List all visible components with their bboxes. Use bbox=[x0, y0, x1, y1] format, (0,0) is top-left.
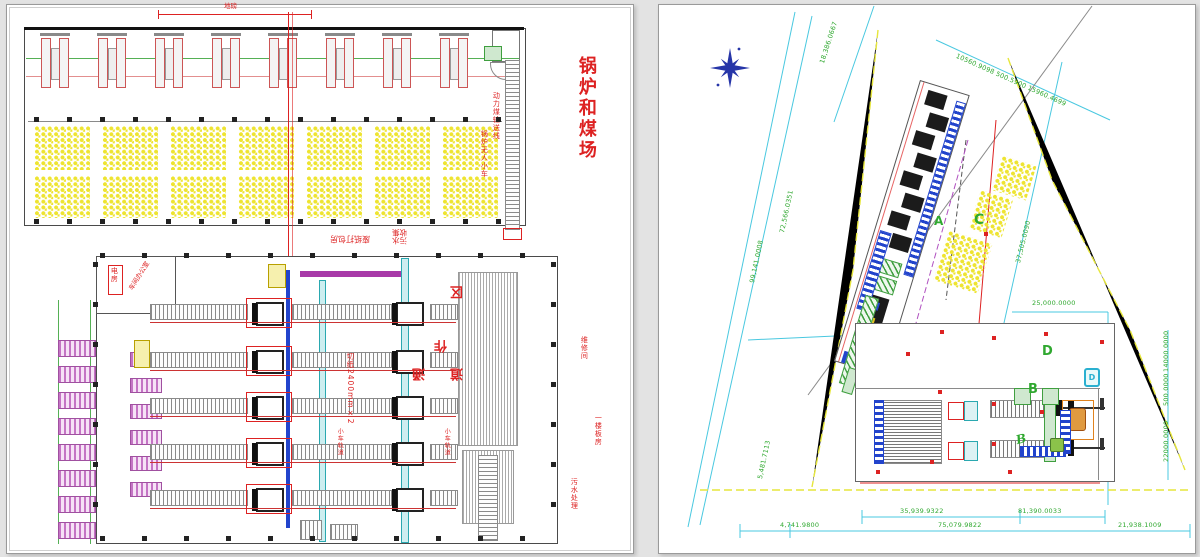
coal-pile-block bbox=[102, 126, 158, 170]
wall-column bbox=[520, 253, 525, 258]
weighbridge-label: 地磅 bbox=[224, 3, 237, 10]
machine-line bbox=[150, 438, 456, 468]
wall-column bbox=[166, 117, 171, 122]
machine-red-line bbox=[150, 416, 456, 417]
conveyor-strip bbox=[430, 398, 458, 414]
dim-right-1: 14000.0000 bbox=[1162, 331, 1170, 372]
coal-conveyor bbox=[505, 60, 520, 230]
wall-column bbox=[268, 536, 273, 541]
boiler-block bbox=[889, 233, 913, 253]
machine-unit bbox=[382, 33, 412, 92]
wall-column bbox=[93, 502, 98, 507]
wall-column bbox=[226, 253, 231, 258]
coal-pile-block bbox=[306, 126, 362, 170]
dim-bottom-upper-2: 81,390.0033 bbox=[1018, 507, 1062, 515]
track-label-right: 小车轨道 bbox=[443, 428, 449, 456]
wall-column bbox=[67, 219, 72, 224]
cad-drawings-stage: 动力煤输送线 锅炉无人小车 地磅 锅炉和煤场 电房 车间办公室 废纸打包房 污水… bbox=[0, 0, 1200, 557]
conveyor-strip bbox=[150, 304, 248, 320]
machine-red-line bbox=[150, 462, 456, 463]
red-tick bbox=[940, 330, 944, 334]
wall-column bbox=[352, 253, 357, 258]
coal-pile-block bbox=[306, 176, 362, 218]
finishing-hatch-block bbox=[458, 272, 518, 446]
dim-d-width: 25,000.0000 bbox=[1032, 299, 1076, 307]
red-tick bbox=[938, 390, 942, 394]
coal-pile-block bbox=[238, 126, 294, 170]
wall-column bbox=[265, 219, 270, 224]
zone-char-dao: 道 bbox=[450, 366, 463, 380]
red-tick bbox=[1044, 332, 1048, 336]
dim-bottom-upper-1: 35,939.9322 bbox=[900, 507, 944, 515]
wall-column bbox=[430, 117, 435, 122]
paper-roll-rack bbox=[58, 340, 96, 357]
wall-column bbox=[310, 536, 315, 541]
wall-column bbox=[520, 536, 525, 541]
zone-letter-a: A bbox=[934, 214, 943, 228]
wall-column bbox=[100, 253, 105, 258]
power-room-label: 电房 bbox=[110, 267, 117, 283]
pulper-box bbox=[268, 264, 286, 288]
side-label-3: 污水处理 bbox=[570, 478, 577, 510]
wall-column bbox=[232, 219, 237, 224]
conveyor-strip bbox=[292, 304, 392, 320]
coal-pile-block bbox=[442, 176, 498, 218]
dim-bottom-lower-3: 21,938.1009 bbox=[1118, 521, 1162, 529]
coal-pile-block bbox=[238, 176, 294, 218]
track-label-left: 小车轨道 bbox=[336, 428, 342, 456]
coal-pile-block bbox=[102, 176, 158, 218]
machine-unit bbox=[97, 33, 127, 92]
wall-column bbox=[232, 117, 237, 122]
machine-unit bbox=[268, 33, 298, 92]
machine-line bbox=[150, 346, 456, 376]
wall-column bbox=[478, 536, 483, 541]
wall-column bbox=[199, 117, 204, 122]
green-square-2 bbox=[1042, 388, 1059, 405]
wall-column bbox=[100, 219, 105, 224]
boiler-block bbox=[887, 210, 911, 230]
top-dim-tick-r bbox=[311, 10, 312, 19]
machine-unit bbox=[40, 33, 70, 92]
red-tick bbox=[992, 402, 996, 406]
packing-room-label: 废纸打包房 bbox=[330, 234, 370, 242]
production-inner-wall-h bbox=[855, 388, 1100, 389]
machine-red-line bbox=[150, 508, 456, 509]
wall-column bbox=[93, 462, 98, 467]
wall-column bbox=[184, 536, 189, 541]
wall-column bbox=[34, 219, 39, 224]
cutter-label: 切纸2400mm×2 bbox=[346, 352, 354, 424]
stock-hatch-block bbox=[882, 400, 942, 464]
paper-roll-rack bbox=[58, 392, 96, 409]
paper-roll-rack bbox=[58, 496, 96, 513]
wall-column bbox=[496, 219, 501, 224]
paper-roll-rack bbox=[130, 378, 162, 393]
zone-char-zuo: 作 bbox=[434, 338, 447, 352]
paper-roll-rack bbox=[58, 522, 96, 539]
conveyor-strip bbox=[150, 490, 248, 506]
wall-column bbox=[310, 253, 315, 258]
conveyor-strip bbox=[430, 304, 458, 320]
pulp-feed-box bbox=[948, 402, 964, 420]
coal-pile-block bbox=[170, 126, 226, 170]
coal-pile-block bbox=[170, 176, 226, 218]
machine-unit bbox=[325, 33, 355, 92]
machine-unit bbox=[211, 33, 241, 92]
zone-letter-d: D bbox=[1042, 344, 1053, 359]
wall-column bbox=[133, 219, 138, 224]
boiler-block bbox=[901, 193, 925, 213]
wall-column bbox=[93, 302, 98, 307]
boiler-block bbox=[900, 170, 924, 190]
red-tick bbox=[1008, 470, 1012, 474]
wall-column bbox=[142, 536, 147, 541]
wall-column bbox=[394, 536, 399, 541]
wall-column bbox=[463, 117, 468, 122]
wall-column bbox=[436, 536, 441, 541]
axis-red-1 bbox=[288, 12, 289, 270]
conveyor-strip bbox=[150, 352, 248, 368]
red-tick bbox=[1100, 340, 1104, 344]
wall-column bbox=[551, 262, 556, 267]
wall-column bbox=[199, 219, 204, 224]
conveyor-strip bbox=[150, 398, 248, 414]
coal-pile-block bbox=[374, 176, 430, 218]
paper-roll-rack bbox=[58, 470, 96, 487]
green-elbow bbox=[1050, 438, 1064, 452]
red-tick bbox=[930, 460, 934, 464]
machine-red-line bbox=[150, 370, 456, 371]
wall-column bbox=[394, 253, 399, 258]
wall-column bbox=[551, 302, 556, 307]
wall-column bbox=[397, 219, 402, 224]
wall-column bbox=[184, 253, 189, 258]
wall-column bbox=[352, 536, 357, 541]
wall-column bbox=[364, 219, 369, 224]
zone-letter-c: C bbox=[974, 212, 984, 228]
wall-column bbox=[551, 422, 556, 427]
pulp-end-tick bbox=[1100, 438, 1104, 450]
red-tick bbox=[992, 336, 996, 340]
stock-edge-conveyor bbox=[874, 400, 884, 464]
wall-column bbox=[331, 219, 336, 224]
machine-unit bbox=[154, 33, 184, 92]
wall-column bbox=[226, 536, 231, 541]
conveyor-label-top: 动力煤输送线 bbox=[492, 92, 499, 140]
conveyor-strip bbox=[430, 490, 458, 506]
coal-pile-block bbox=[34, 176, 90, 218]
conveyor-strip bbox=[292, 490, 392, 506]
wall-column bbox=[551, 462, 556, 467]
top-dim-tick-l bbox=[158, 10, 159, 19]
zone-char-qu: 区 bbox=[450, 284, 463, 298]
pulp-end-tick bbox=[1100, 398, 1104, 410]
wall-column bbox=[93, 262, 98, 267]
dim-right-2: 500.0000 bbox=[1162, 373, 1170, 406]
packing-conveyor-bar bbox=[300, 271, 404, 277]
red-tick bbox=[876, 470, 880, 474]
wall-column bbox=[551, 382, 556, 387]
wall-column bbox=[551, 502, 556, 507]
side-label-2: 一楼板房 bbox=[594, 414, 601, 446]
wall-column bbox=[67, 117, 72, 122]
pulp-tank bbox=[964, 441, 978, 461]
sewage-label: 污水收集 bbox=[390, 228, 407, 244]
zone-letter-b: B bbox=[1028, 382, 1038, 397]
wall-column bbox=[268, 253, 273, 258]
wall-column bbox=[166, 219, 171, 224]
wall-column bbox=[436, 253, 441, 258]
paper-roll-rack bbox=[58, 444, 96, 461]
wall-column bbox=[397, 117, 402, 122]
pulp-feed-box bbox=[948, 442, 964, 460]
production-inner-wall-v bbox=[1098, 388, 1099, 480]
wall-column bbox=[265, 117, 270, 122]
conveyor-end-box bbox=[503, 228, 522, 240]
wall-column bbox=[496, 117, 501, 122]
conveyor-strip bbox=[150, 444, 248, 460]
conveyor-strip bbox=[292, 398, 392, 414]
boiler-coal-title: 锅炉和煤场 bbox=[576, 56, 595, 161]
conveyor-strip bbox=[292, 352, 392, 368]
wall-column bbox=[430, 219, 435, 224]
wall-column bbox=[100, 117, 105, 122]
wall-column bbox=[93, 382, 98, 387]
wall-column bbox=[100, 536, 105, 541]
wall-column bbox=[331, 117, 336, 122]
wall-column bbox=[93, 422, 98, 427]
hopper-box bbox=[484, 46, 502, 61]
boiler-block bbox=[926, 112, 950, 132]
machine-unit bbox=[439, 33, 469, 92]
coal-pile-block bbox=[442, 126, 498, 170]
paper-roll-rack bbox=[58, 366, 96, 383]
wall-column bbox=[34, 117, 39, 122]
red-tick bbox=[984, 232, 988, 236]
boiler-block bbox=[913, 152, 937, 172]
conveyor-label-bottom: 锅炉无人小车 bbox=[480, 130, 487, 178]
dim-bottom-lower-1: 4,741.9800 bbox=[780, 521, 819, 529]
wall-column bbox=[478, 253, 483, 258]
wall-column bbox=[551, 342, 556, 347]
machine-line bbox=[150, 298, 456, 328]
boiler-block bbox=[912, 130, 936, 150]
wall-column bbox=[133, 117, 138, 122]
axis-red-2 bbox=[292, 12, 293, 270]
dim-right-3: 22000.0000 bbox=[1162, 421, 1170, 462]
wall-column bbox=[298, 117, 303, 122]
wall-column bbox=[463, 219, 468, 224]
red-tick bbox=[906, 352, 910, 356]
machine-line bbox=[150, 484, 456, 514]
coal-pile-block bbox=[34, 126, 90, 170]
compass-icon bbox=[706, 44, 754, 92]
wall-column bbox=[298, 219, 303, 224]
ladder-conveyor bbox=[478, 455, 498, 541]
zone-char-tong: 通 bbox=[412, 366, 425, 380]
dim-bottom-lower-2: 75,079.9822 bbox=[938, 521, 982, 529]
boiler-block bbox=[924, 90, 948, 110]
wall-column bbox=[93, 342, 98, 347]
machine-red-line bbox=[150, 322, 456, 323]
paper-roll-rack bbox=[58, 418, 96, 435]
side-label-1: 维修间 bbox=[580, 336, 587, 360]
sump-box bbox=[134, 340, 150, 368]
red-tick bbox=[992, 442, 996, 446]
machine-line bbox=[150, 392, 456, 422]
coal-pile-block bbox=[374, 126, 430, 170]
wall-column bbox=[364, 117, 369, 122]
boiler-top-wall bbox=[24, 27, 524, 30]
pulp-tank bbox=[964, 401, 978, 421]
tank-d-icon: D bbox=[1084, 368, 1100, 387]
wall-column bbox=[142, 253, 147, 258]
